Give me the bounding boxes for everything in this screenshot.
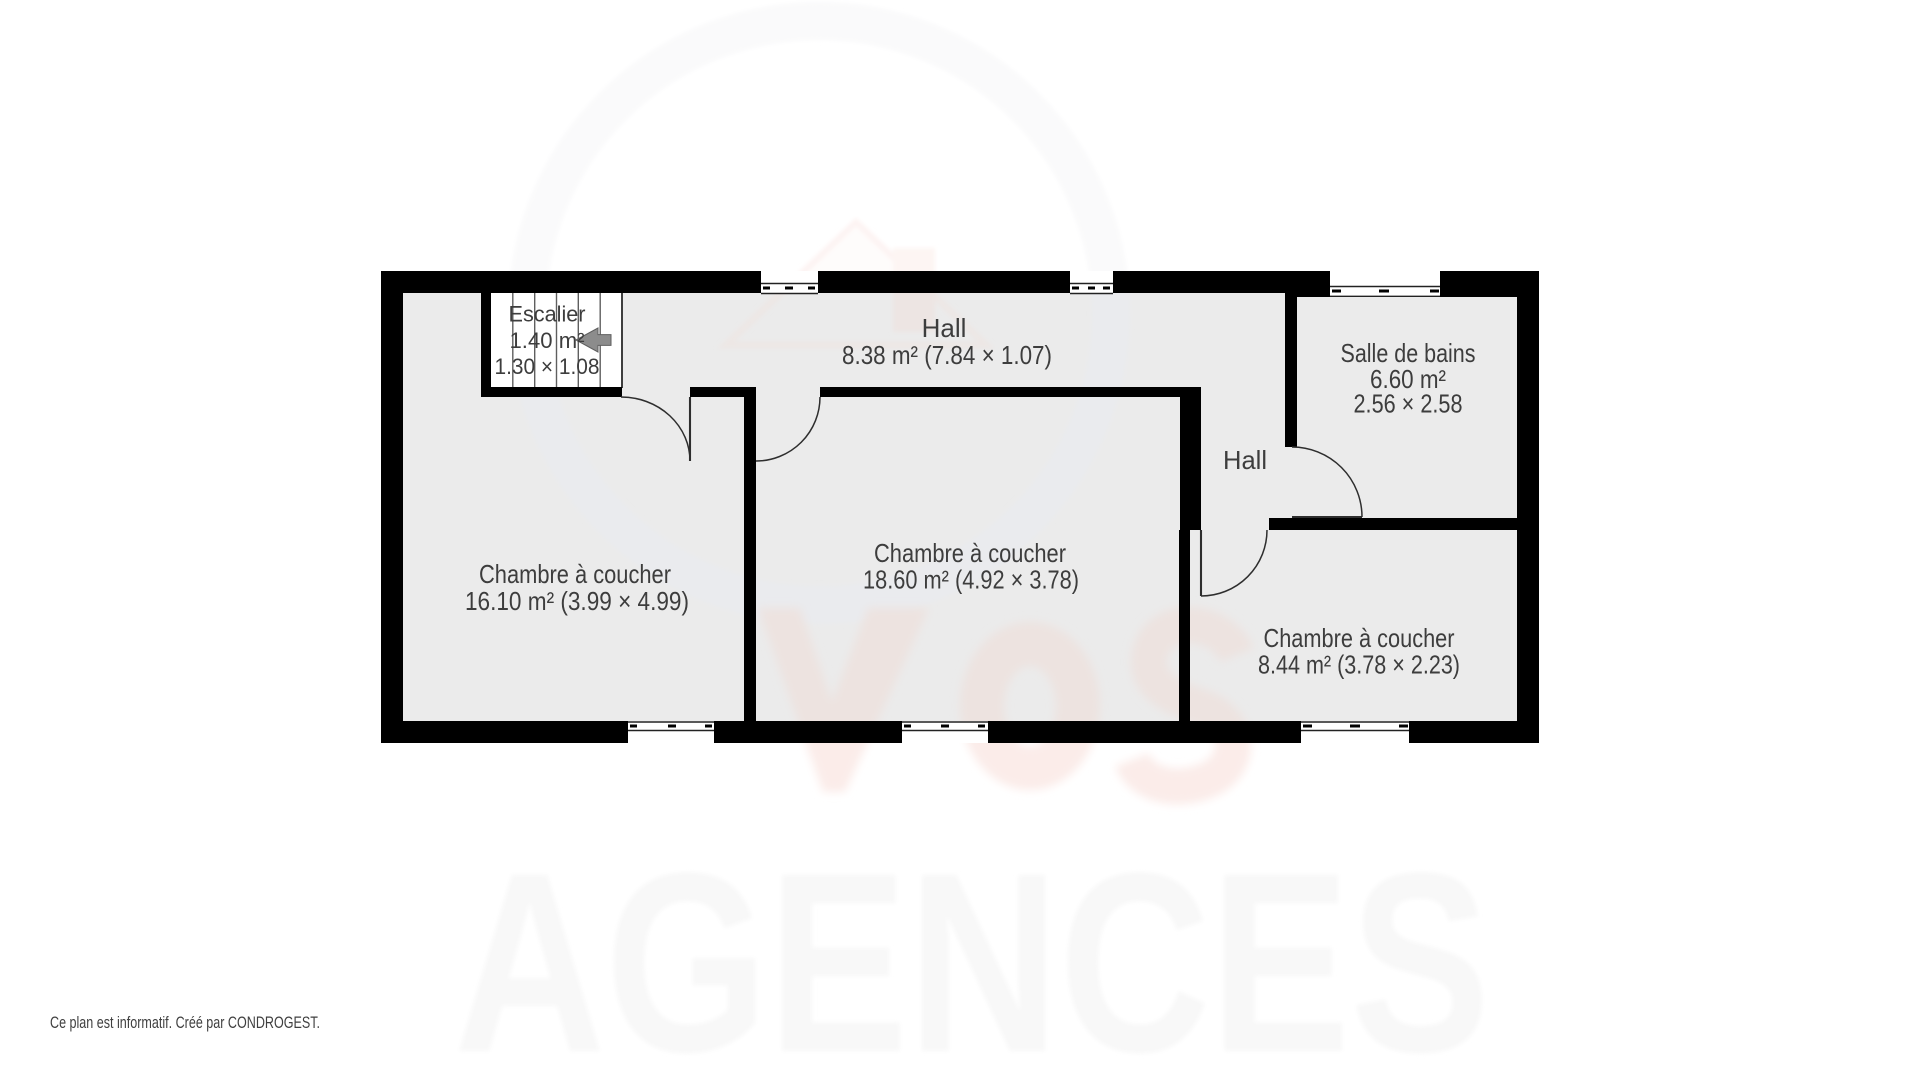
svg-text:Ce plan est informatif. Créé p: Ce plan est informatif. Créé par CONDROG… [50, 1013, 320, 1032]
svg-text:Hall: Hall [1223, 445, 1267, 475]
svg-text:Chambre à coucher: Chambre à coucher [1264, 623, 1455, 653]
svg-text:18.60 m² (4.92 × 3.78): 18.60 m² (4.92 × 3.78) [863, 565, 1079, 595]
svg-text:8.38 m² (7.84 × 1.07): 8.38 m² (7.84 × 1.07) [842, 340, 1052, 370]
svg-text:8.44 m² (3.78 × 2.23): 8.44 m² (3.78 × 2.23) [1258, 650, 1460, 680]
svg-text:2.56 × 2.58: 2.56 × 2.58 [1354, 389, 1463, 419]
svg-text:Chambre à coucher: Chambre à coucher [479, 559, 671, 589]
svg-text:Escalier: Escalier [509, 302, 586, 327]
svg-text:1.40 m²: 1.40 m² [510, 328, 585, 353]
svg-text:AGENCES: AGENCES [454, 820, 1490, 1080]
svg-text:Hall: Hall [922, 313, 967, 343]
svg-text:Chambre à coucher: Chambre à coucher [874, 538, 1066, 568]
svg-text:1.30 × 1.08: 1.30 × 1.08 [495, 354, 600, 379]
svg-text:16.10 m² (3.99 × 4.99): 16.10 m² (3.99 × 4.99) [465, 586, 689, 616]
